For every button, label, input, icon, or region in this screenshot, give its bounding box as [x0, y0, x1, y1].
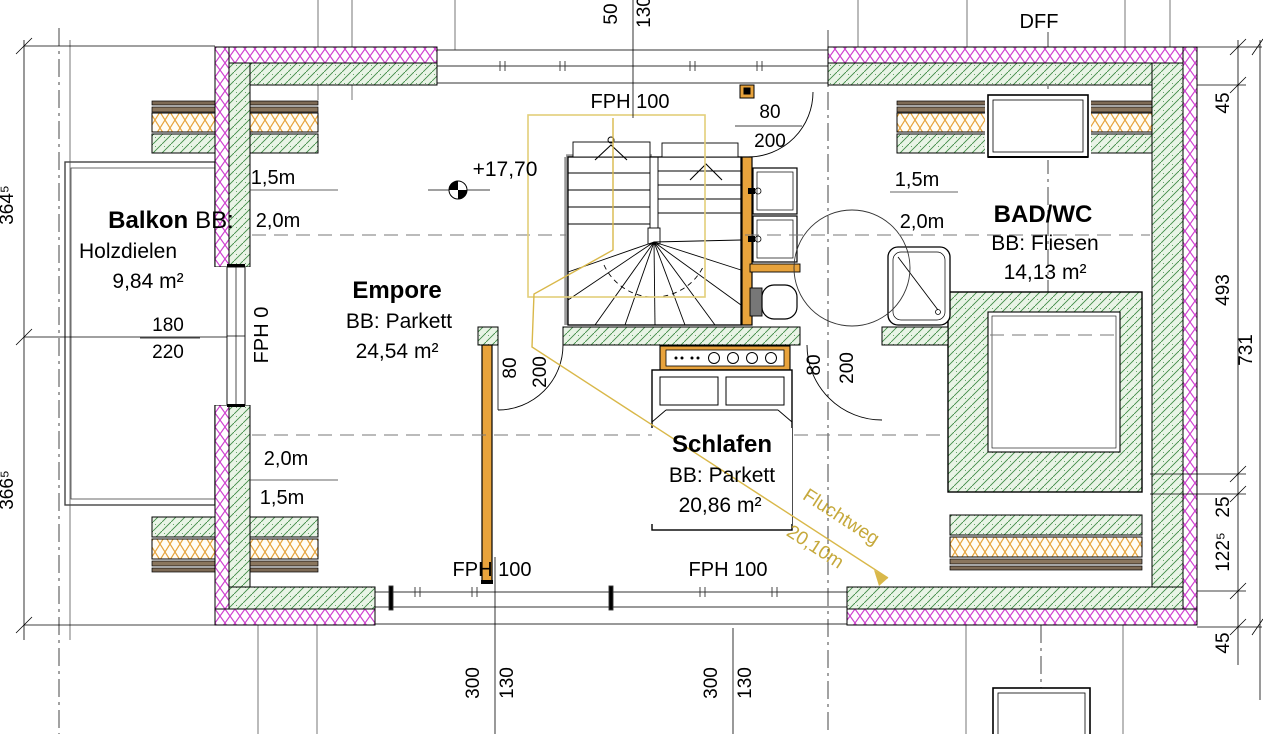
room-empore-floor: BB: Parkett [346, 310, 452, 333]
label-fph100-bottom-center: FPH 100 [689, 559, 768, 581]
shower [888, 247, 950, 325]
dim-top-130: 130 [634, 0, 655, 28]
door-bad-dim: 80 200 [804, 352, 858, 384]
svg-text:220: 220 [152, 342, 184, 363]
dim-bottom-left-130: 130 [497, 667, 518, 699]
dim-right-2: 493 [1213, 274, 1234, 306]
kneewall-band-bottom-right [950, 515, 1142, 570]
dim-right-1: 45 [1213, 92, 1234, 113]
room-schlafen-title: Schlafen [672, 431, 772, 458]
room-empore-area: 24,54 m² [356, 340, 439, 363]
dim-top-50: 50 [601, 3, 622, 24]
dim-right-4: 122⁵ [1213, 532, 1234, 572]
level-marker [428, 181, 490, 199]
eaves-lines-bottom [375, 586, 847, 624]
dim-right-total: 731 [1236, 334, 1257, 366]
svg-text:80: 80 [759, 102, 780, 123]
room-balkon-area: 9,84 m² [112, 270, 183, 293]
label-fph0: FPH 0 [251, 307, 273, 364]
room-balkon-title: BalkonBB: [108, 207, 234, 234]
svg-text:200: 200 [754, 131, 786, 152]
label-fluchtweg-length: 20,10m [783, 521, 848, 573]
headroom-20-top-left: 2,0m [256, 210, 300, 232]
roof-window-bottom [993, 688, 1090, 734]
svg-text:80: 80 [804, 354, 825, 375]
shaft-ring [948, 292, 1142, 492]
escape-arrowhead [874, 570, 888, 586]
headroom-20-right: 2,0m [900, 211, 944, 233]
window-left-dim: 180 220 [140, 315, 200, 363]
room-bad-area: 14,13 m² [1004, 261, 1087, 284]
dim-right-5: 45 [1213, 632, 1234, 653]
room-bad-floor: BB: Fliesen [991, 232, 1098, 255]
headroom-15-right: 1,5m [895, 169, 939, 191]
room-empore-title: Empore [352, 277, 441, 304]
sideboard [660, 346, 790, 370]
label-fph100-top: FPH 100 [591, 91, 670, 113]
sink-2 [748, 216, 797, 262]
svg-text:200: 200 [530, 356, 551, 388]
headroom-20-bottom-left: 2,0m [264, 448, 308, 470]
balcony-window [214, 264, 251, 407]
floorplan-drawing: BalkonBB: Holzdielen 9,84 m² Empore BB: … [0, 0, 1263, 734]
toilet [750, 285, 797, 319]
room-balkon-floor: Holzdielen [79, 240, 177, 263]
dim-left-1: 364⁵ [0, 185, 18, 225]
room-schlafen-floor: BB: Parkett [669, 464, 775, 487]
headroom-15-bottom-left: 1,5m [260, 487, 304, 509]
svg-text:180: 180 [152, 315, 184, 336]
label-dff: DFF [1020, 11, 1059, 33]
dim-bottom-right-130: 130 [735, 667, 756, 699]
room-bad-title: BAD/WC [994, 201, 1093, 228]
svg-text:80: 80 [500, 357, 521, 378]
room-schlafen-area: 20,86 m² [679, 494, 762, 517]
label-level: +17,70 [473, 158, 538, 181]
floorplan-canvas: BalkonBB: Holzdielen 9,84 m² Empore BB: … [0, 0, 1263, 734]
dim-left-2: 366⁵ [0, 470, 18, 510]
door-top-dim: 80 200 [735, 102, 802, 152]
svg-text:200: 200 [837, 352, 858, 384]
label-fph100-bottom-left: FPH 100 [453, 559, 532, 581]
door-schlafen-dim: 80 200 [500, 356, 551, 388]
dim-bottom-right-300: 300 [701, 667, 722, 699]
headroom-15-top-left: 1,5m [251, 167, 295, 189]
roof-window-dff [985, 92, 1091, 160]
eaves-lines-top [437, 50, 828, 83]
sink-1 [748, 168, 797, 214]
wood-partition-schlafen [482, 345, 492, 583]
dim-bottom-left-300: 300 [463, 667, 484, 699]
dim-right-3: 25 [1213, 496, 1234, 517]
vanity-counter [750, 264, 800, 272]
